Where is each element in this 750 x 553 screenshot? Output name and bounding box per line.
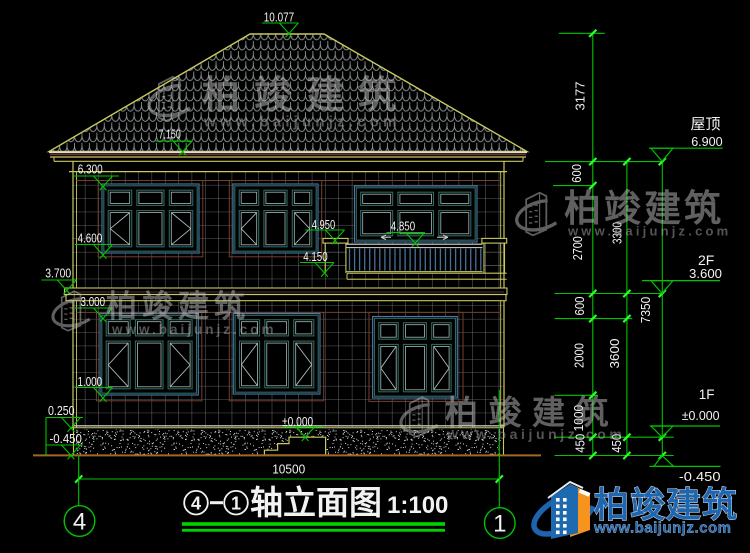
svg-text:4: 4 [191, 494, 201, 514]
svg-text:轴立面图: 轴立面图 [250, 484, 382, 521]
svg-text:-0.450: -0.450 [50, 431, 82, 446]
svg-text:柏竣建筑: 柏竣建筑 [202, 75, 410, 117]
svg-text:柏竣建筑: 柏竣建筑 [106, 289, 250, 324]
svg-text:1.000: 1.000 [78, 374, 103, 389]
svg-text:10500: 10500 [272, 462, 305, 477]
svg-text:3.700: 3.700 [45, 266, 71, 281]
svg-text:7.150: 7.150 [159, 126, 181, 141]
svg-text:4.600: 4.600 [78, 230, 103, 245]
svg-text:1F: 1F [699, 387, 715, 402]
svg-text:2700: 2700 [571, 236, 585, 260]
svg-text:0.250: 0.250 [48, 403, 75, 418]
svg-text:3.000: 3.000 [81, 294, 106, 309]
svg-text:4.150: 4.150 [303, 249, 328, 264]
svg-text:2000: 2000 [573, 343, 587, 368]
svg-text:www.baijunjz.com: www.baijunjz.com [203, 114, 401, 131]
svg-text:7350: 7350 [639, 297, 653, 324]
svg-text:1: 1 [493, 511, 506, 538]
svg-text:10.077: 10.077 [264, 10, 294, 25]
svg-text:4.850: 4.850 [391, 218, 416, 233]
svg-text:1: 1 [231, 494, 241, 514]
svg-text:屋顶: 屋顶 [691, 116, 721, 133]
svg-text:600: 600 [570, 164, 584, 183]
svg-text:±0.000: ±0.000 [682, 408, 720, 423]
svg-text:-0.450: -0.450 [679, 469, 721, 484]
svg-text:www.baijunjz.com: www.baijunjz.com [593, 520, 731, 537]
svg-text:1:100: 1:100 [387, 492, 448, 519]
svg-text:www.baijunjz.com: www.baijunjz.com [567, 224, 731, 239]
svg-text:±0.000: ±0.000 [282, 414, 313, 429]
svg-text:3177: 3177 [573, 81, 587, 110]
svg-text:600: 600 [573, 296, 587, 315]
svg-text:6.300: 6.300 [78, 161, 103, 176]
svg-text:www.baijunjz.com: www.baijunjz.com [111, 322, 277, 337]
svg-text:6.900: 6.900 [691, 134, 723, 149]
svg-text:3.600: 3.600 [689, 266, 722, 281]
svg-text:www.baijunjz.com: www.baijunjz.com [446, 426, 625, 442]
svg-text:4.950: 4.950 [312, 217, 336, 232]
svg-text:3600: 3600 [608, 338, 622, 368]
svg-text:4: 4 [73, 509, 86, 536]
